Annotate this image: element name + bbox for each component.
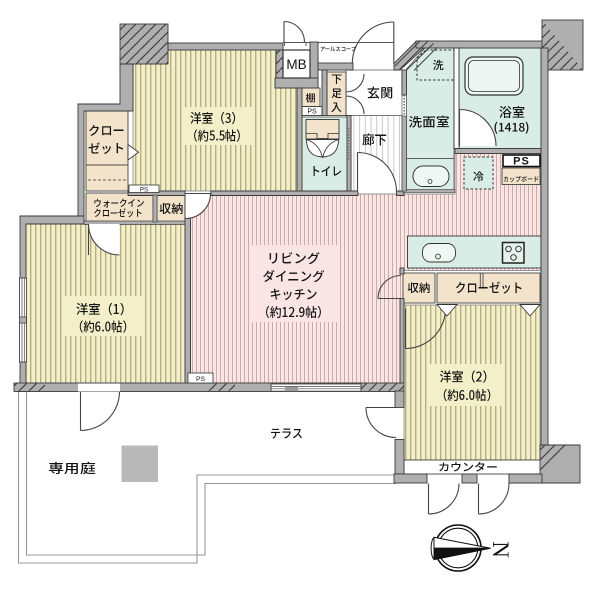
svg-text:冷: 冷 [473,169,485,185]
svg-text:玄関: 玄関 [367,83,393,102]
svg-text:入: 入 [331,99,342,115]
svg-text:PS: PS [140,187,148,194]
svg-text:クローゼット: クローゼット [455,278,523,297]
svg-text:PS: PS [196,376,206,383]
svg-text:（約6.0帖）: （約6.0帖） [72,317,134,336]
svg-text:(1418): (1418) [494,119,530,136]
svg-text:リビング: リビング [267,248,320,267]
svg-text:収納: 収納 [408,280,431,296]
svg-text:PS: PS [513,156,530,168]
svg-text:洋室（2）: 洋室（2） [440,367,495,386]
svg-text:洗: 洗 [433,57,444,73]
svg-text:アールスコープ: アールスコープ [320,44,356,53]
svg-text:PS: PS [307,109,317,116]
svg-text:トイレ: トイレ [310,163,342,180]
svg-text:カップボード: カップボード [503,174,539,184]
svg-text:テラス: テラス [270,423,303,442]
svg-text:棚: 棚 [305,90,316,105]
svg-text:廊下: 廊下 [362,130,387,149]
svg-text:（約5.5帖）: （約5.5帖） [187,126,248,145]
svg-text:クロー: クロー [88,120,125,139]
svg-text:ゼット: ゼット [88,138,125,157]
svg-text:キッチン: キッチン [270,284,318,303]
svg-text:（約12.9帖）: （約12.9帖） [258,302,329,321]
svg-text:カウンター: カウンター [438,459,498,475]
svg-text:洋室（1）: 洋室（1） [76,299,132,318]
svg-text:N: N [488,541,513,558]
svg-text:洋室（3）: 洋室（3） [190,108,243,127]
svg-text:収納: 収納 [159,200,183,217]
svg-text:MB: MB [286,57,306,72]
svg-text:洗面室: 洗面室 [409,112,450,131]
svg-text:専用庭: 専用庭 [48,458,96,477]
svg-text:（約6.0帖）: （約6.0帖） [436,385,498,404]
svg-text:ダイニング: ダイニング [263,266,325,285]
svg-text:クローゼット: クローゼット [94,206,143,220]
